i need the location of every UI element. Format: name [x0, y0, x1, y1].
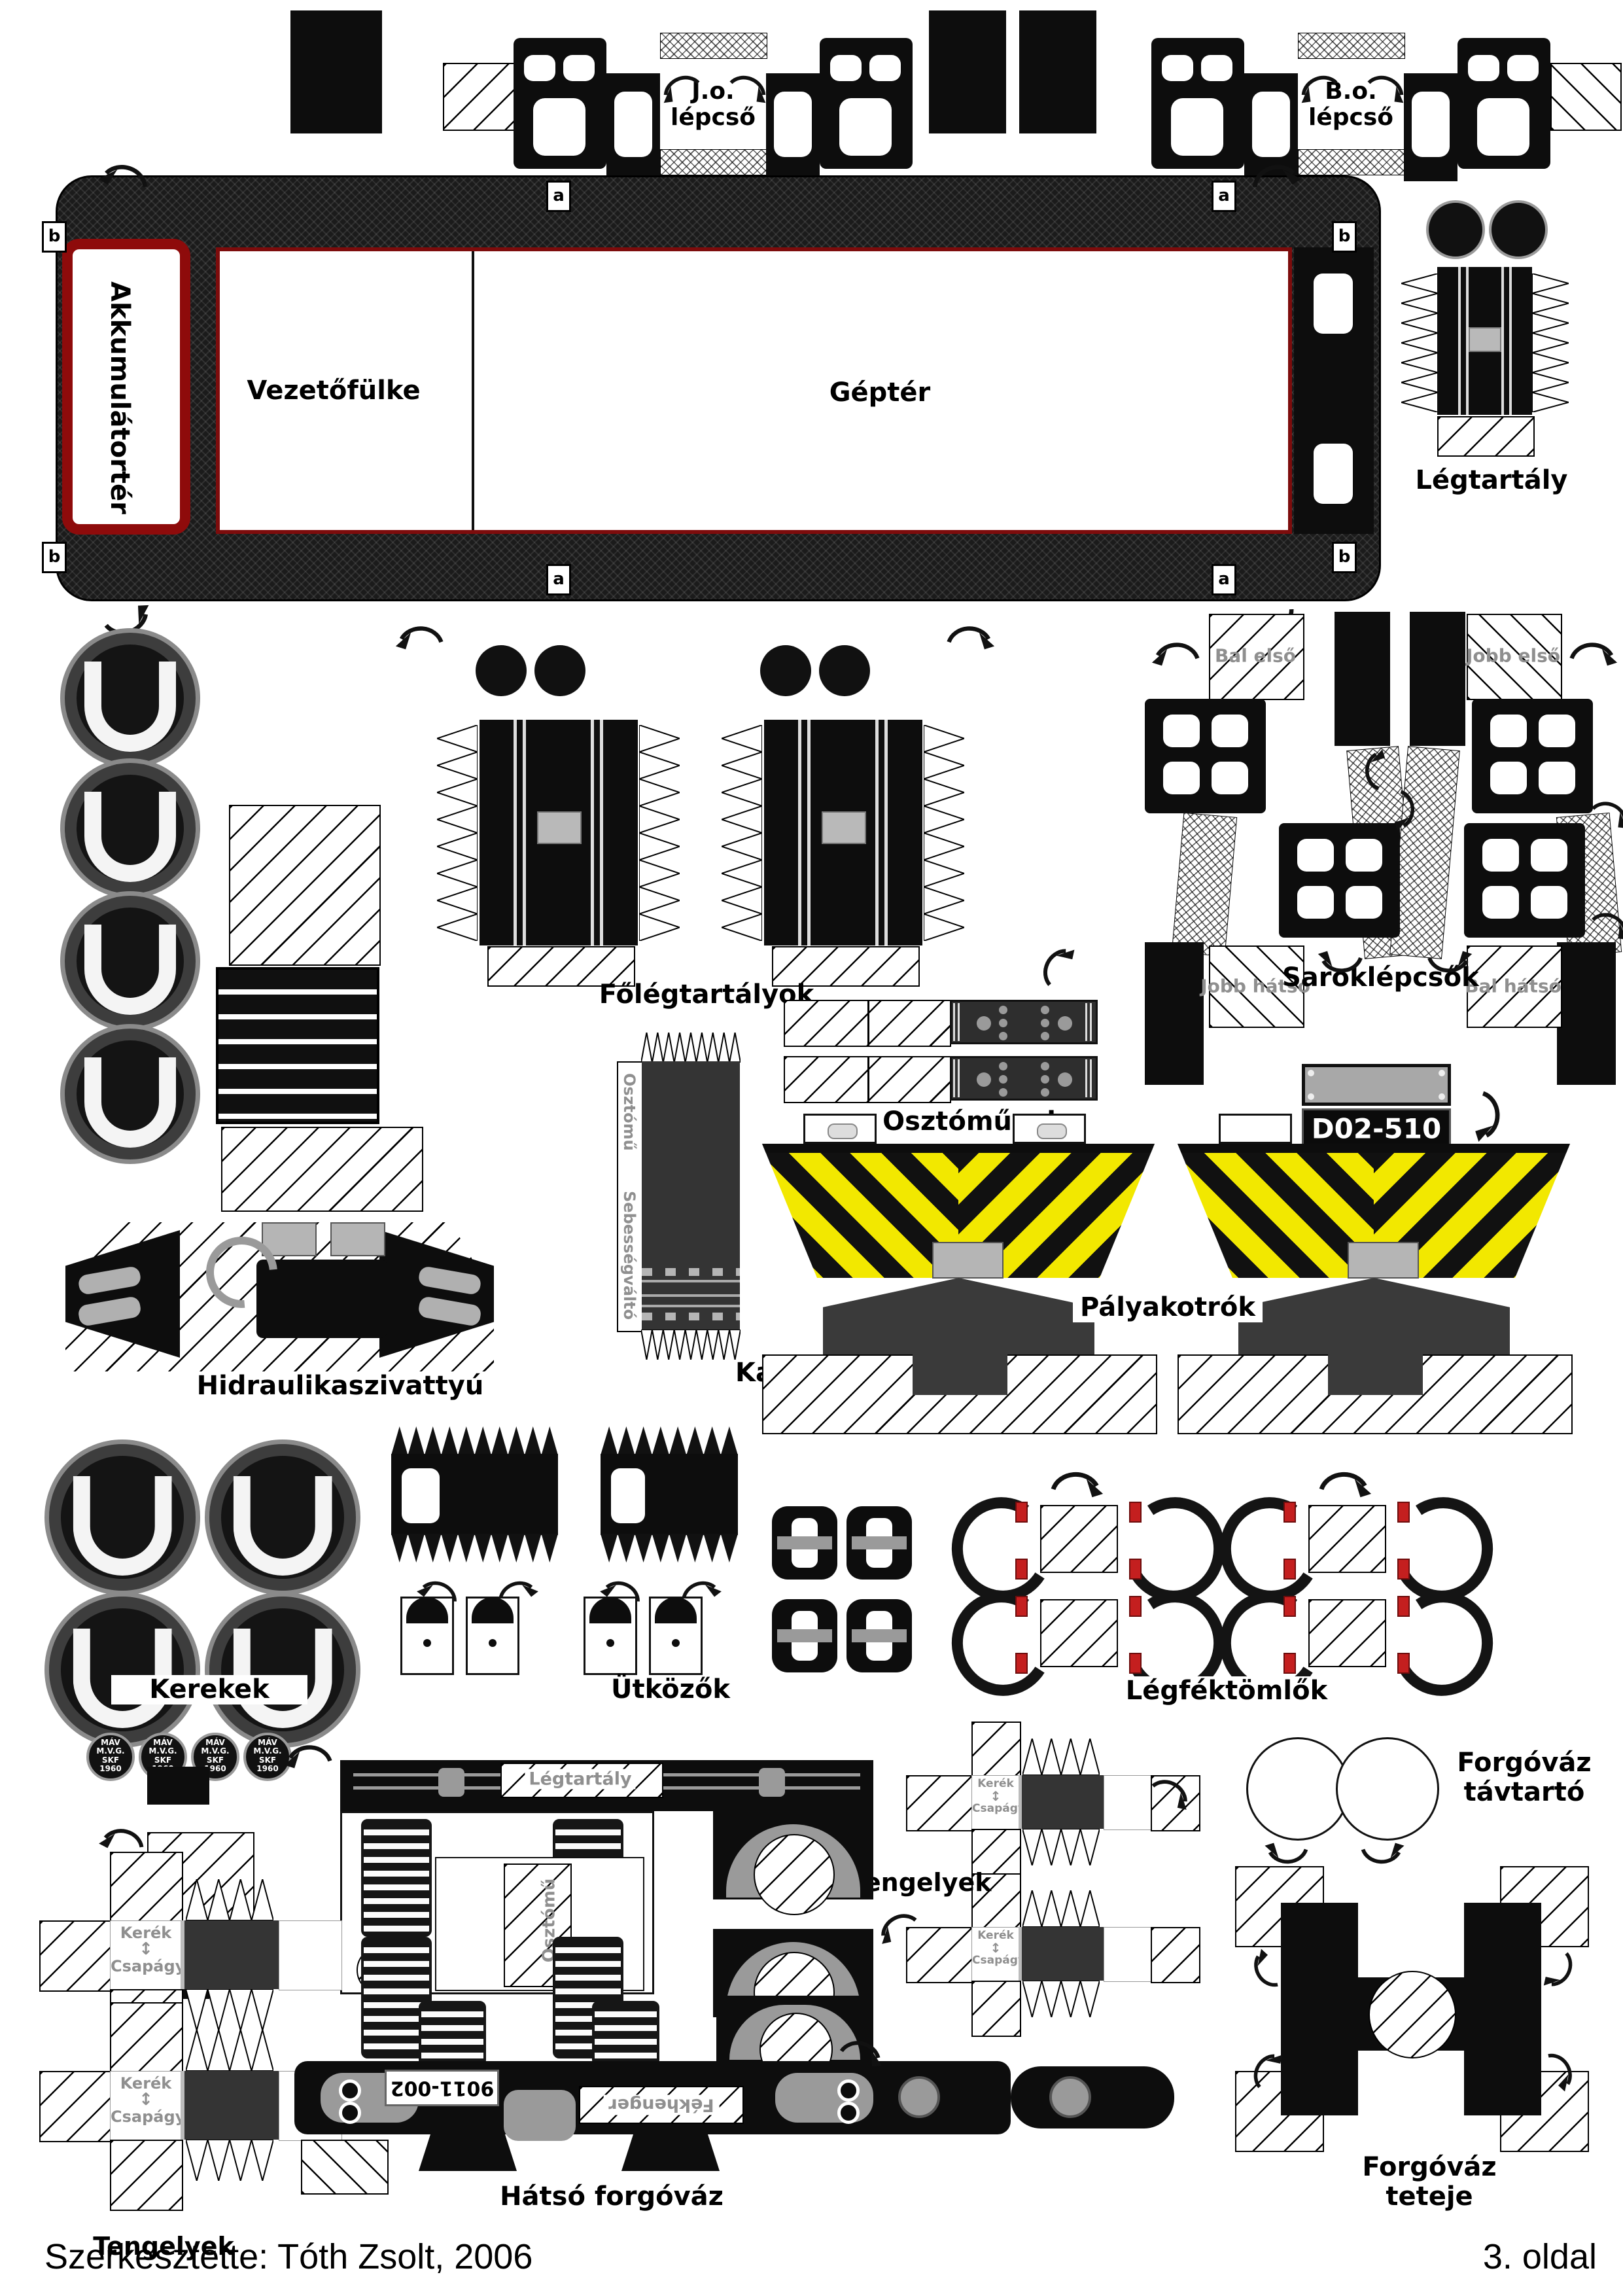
pivot-dot: [339, 2102, 361, 2124]
coupler-detail: [1037, 1123, 1067, 1139]
axle-body: [181, 2071, 287, 2140]
shaft-dot: [977, 1016, 991, 1031]
hose-clamp: [1015, 1502, 1028, 1523]
tank-end-disc: [534, 645, 585, 696]
step-plate: [1457, 38, 1550, 169]
center-block: [504, 2090, 576, 2141]
axle-body: [1019, 1927, 1110, 1981]
wheel: [60, 1024, 200, 1164]
buffer-sleeve: [772, 1599, 837, 1672]
step-plate: [820, 38, 913, 169]
glue-flap: [301, 2140, 389, 2195]
step-hole: [1412, 92, 1450, 157]
builder-plate: [1348, 1242, 1419, 1279]
rivet-dot: [1439, 1070, 1445, 1076]
hose-bracket: [1308, 1505, 1386, 1573]
step-hole: [1163, 715, 1200, 747]
curved-arrow: [1020, 930, 1079, 994]
spacer-disc: [1246, 1737, 1350, 1841]
rivet-dot: [1041, 1075, 1049, 1084]
corner-step-note: Bal hátsó: [1465, 976, 1562, 997]
step-hole: [1490, 762, 1527, 794]
step-hole: [1531, 886, 1567, 919]
step-column: [766, 73, 820, 181]
arch-wheel: [754, 1834, 835, 1915]
bearing-badge: MÁV M.V.G. SKF 1960: [86, 1733, 135, 1781]
hose-bracket: [1040, 1505, 1118, 1573]
step-hole: [1346, 886, 1382, 919]
plow-blade: [1238, 1278, 1510, 1355]
buffer-head: [472, 1597, 514, 1623]
cardan-body: [642, 1061, 740, 1330]
rivet-dot: [1041, 1006, 1049, 1014]
arm-disc: [898, 2076, 940, 2118]
bogie-foot: [419, 2134, 517, 2171]
step-hole: [1482, 839, 1519, 872]
wheel-cutout: [84, 662, 176, 752]
axle-bearing-note: Csapágy: [111, 2108, 181, 2126]
chevron-left-half: [1178, 1144, 1374, 1278]
step-hole: [1468, 55, 1499, 81]
tank-stripe: [1501, 267, 1504, 415]
axle-label-cell: Kerék ↕ Csapágy: [971, 1775, 1020, 1830]
chevron-top-edge: [762, 1144, 1155, 1153]
battery-label: Akkumulátortér: [105, 281, 135, 514]
sleeve-band: [852, 1629, 907, 1642]
buffer-stem: [400, 1597, 454, 1675]
curved-arrow: [1467, 1088, 1526, 1144]
hose-bracket: [1040, 1599, 1118, 1667]
rivet-dot: [999, 1006, 1007, 1014]
glue-flap: [1550, 63, 1622, 131]
wheel: [60, 758, 200, 898]
arm-disc: [1049, 2076, 1091, 2118]
distributor-flap: [784, 1056, 951, 1103]
pivot-circle: [1369, 1971, 1456, 2058]
curved-arrow: [1540, 1945, 1594, 2003]
number-plate-text: D02-510: [1312, 1113, 1441, 1145]
corner-step-plate: [1145, 699, 1266, 813]
glue-teeth: [186, 2140, 273, 2181]
hydraulic-pump-label: Hidraulikaszivattyú: [193, 1371, 487, 1401]
rivet-dot: [1041, 1088, 1049, 1097]
step-hole: [1297, 839, 1334, 872]
corner-step-plate: [1472, 699, 1593, 813]
tick-marks: [1085, 1003, 1094, 1041]
tank-end-disc: [1426, 200, 1485, 259]
axle-cell: [1104, 1775, 1152, 1830]
rear-bogie-label: Hátsó forgóváz: [497, 2182, 726, 2212]
axle-label-cell: Kerék ↕ Csapágy: [971, 1927, 1020, 1982]
zigzag-flap: [437, 725, 478, 941]
wheel: [44, 1592, 200, 1748]
join-tab-b: b: [1332, 542, 1357, 573]
shaft-dot: [1058, 1072, 1072, 1087]
axle-bearing-note: Csapágy: [111, 1957, 181, 1975]
rivet-dot: [999, 1032, 1007, 1040]
step-hole: [1346, 839, 1382, 872]
hose-clamp: [1397, 1502, 1410, 1523]
glue-teeth: [186, 1879, 273, 1920]
sleeve-band: [777, 1629, 832, 1642]
rivet-dot: [1308, 1093, 1314, 1100]
rivet-dot: [1041, 1062, 1049, 1070]
buffer-sleeve: [846, 1599, 912, 1672]
glue-flap: [443, 63, 516, 131]
axle-flap: [39, 2071, 113, 2142]
axle-flap: [906, 1927, 974, 1983]
curved-arrow: [281, 1727, 337, 1769]
join-tab-b: b: [42, 221, 67, 253]
tank-end-disc: [476, 645, 527, 696]
engine-room-label: Géptér: [772, 378, 988, 408]
step-hole: [1212, 762, 1248, 794]
zigzag-flap: [722, 725, 762, 941]
cardan-rivets: [642, 1313, 740, 1320]
wheel: [60, 628, 200, 768]
cardan-rivets: [642, 1268, 740, 1276]
cardan-top-note: Osztómű: [620, 1073, 638, 1151]
crosshatch-strip: [1172, 813, 1237, 957]
tank-plate: [537, 811, 582, 844]
buffer-stem: [466, 1597, 519, 1675]
hose-clamp: [1283, 1653, 1296, 1674]
tank-stripe: [798, 720, 801, 945]
axle-flap: [110, 1852, 183, 1923]
black-column: [1145, 942, 1204, 1085]
spacer-disc: [1336, 1737, 1439, 1841]
zigzag-flap: [1532, 274, 1569, 412]
glue-teeth: [1022, 1890, 1100, 1927]
plows-label: Pályakotrók: [1073, 1293, 1263, 1322]
sleeve-band: [852, 1536, 907, 1549]
builder-plate: 9011-002: [385, 2070, 499, 2106]
join-tab-a: a: [1212, 181, 1236, 212]
axle-flap: [971, 1722, 1021, 1778]
tank-end-disc: [760, 645, 811, 696]
glue-teeth: [1022, 1739, 1100, 1775]
step-hole: [830, 55, 862, 81]
step-hole: [1507, 55, 1539, 81]
rivet-dot: [999, 1062, 1007, 1070]
black-block: [1019, 10, 1096, 133]
wheel: [60, 891, 200, 1031]
hose-clamp: [1129, 1502, 1142, 1523]
rivet-dot: [1439, 1093, 1445, 1100]
buffer-stem: [649, 1597, 703, 1675]
plow-base-notch: [1328, 1354, 1423, 1395]
buffer-head: [406, 1597, 448, 1623]
tank-stripe: [600, 720, 603, 945]
tank-stripe: [875, 720, 879, 945]
black-column: [1335, 612, 1390, 746]
curved-arrow: [1357, 1842, 1406, 1880]
brake-cyl-note: Fékhenger: [603, 2095, 719, 2115]
glue-teeth: [641, 1033, 741, 1063]
curved-arrow: [942, 609, 998, 650]
crosshatch-flap: [1298, 149, 1405, 175]
chevron-top-edge: [1178, 1144, 1570, 1153]
cardan-line: [642, 1305, 740, 1307]
hose-clamp: [1129, 1653, 1142, 1674]
buffer-stem: [584, 1597, 637, 1675]
tick-marks: [953, 1003, 962, 1041]
curved-arrow: [95, 1809, 153, 1856]
step-column: [606, 73, 660, 181]
tank-wrap: [1437, 267, 1532, 415]
glue-teeth: [1022, 1981, 1100, 2017]
join-tab-b: b: [42, 542, 67, 573]
stem-dot: [672, 1639, 680, 1647]
tick-marks: [1085, 1059, 1094, 1097]
glue-flap: [1437, 416, 1535, 457]
updown-arrow: ↕: [111, 2093, 181, 2108]
pump-detail: [77, 1296, 142, 1327]
glue-teeth: [601, 1426, 738, 1455]
wheels-label: Kerekek: [111, 1675, 307, 1704]
tank-end-disc: [1489, 200, 1548, 259]
glue-flap: [229, 805, 381, 966]
axle-bearing-note: Csapágy: [972, 1802, 1019, 1815]
tick-marks: [953, 1059, 962, 1097]
axle-body: [181, 1920, 287, 1989]
shaft-dot: [1058, 1016, 1072, 1031]
spring: [592, 2001, 659, 2066]
step-hole: [839, 98, 892, 156]
coupler-detail: [828, 1123, 858, 1139]
glue-teeth: [186, 1989, 273, 2030]
bogie-tank-note: Légtartály: [525, 1769, 635, 1790]
hose-clamp: [1015, 1653, 1028, 1674]
bogie-foot: [621, 2134, 720, 2171]
pump-detail: [77, 1265, 142, 1296]
step-plate: [1151, 38, 1244, 169]
plow-base-notch: [913, 1354, 1007, 1395]
footer-page-number: 3. oldal: [1483, 2236, 1597, 2277]
coupler-tab: [1013, 1114, 1086, 1144]
wheel-cutout: [73, 1476, 172, 1575]
chevron-left-half: [762, 1144, 958, 1278]
black-column: [1557, 942, 1616, 1085]
footer-credit: Szerkesztette: Tóth Zsolt, 2006: [44, 2236, 532, 2277]
hose-bracket: [1308, 1599, 1386, 1667]
tank-stripe: [807, 720, 811, 945]
body-end-cap: [1294, 247, 1374, 534]
wheel-cutout: [234, 1476, 332, 1575]
step-hole: [524, 55, 555, 81]
axle-bearing-note: Csapágy: [972, 1954, 1019, 1967]
stem-dot: [489, 1639, 497, 1647]
builder-plate: [932, 1242, 1003, 1279]
glue-teeth: [601, 1534, 738, 1563]
cardan-line: [642, 1294, 740, 1297]
plow-blade: [823, 1278, 1094, 1355]
tank-stripe: [884, 720, 888, 945]
buffers-label: Ütközők: [576, 1675, 765, 1704]
rivet-dot: [999, 1019, 1007, 1027]
bogie-top-label: Forgóváz teteje: [1315, 2153, 1544, 2212]
corner-step-note: Bal első: [1215, 645, 1296, 667]
number-plate: D02-510: [1302, 1108, 1451, 1149]
step-hole: [1477, 98, 1529, 156]
curved-arrow: [1423, 950, 1475, 989]
step-hole: [563, 55, 595, 81]
wheel: [205, 1592, 360, 1748]
lever-cluster: [775, 2073, 873, 2123]
hose-clamp: [1283, 1596, 1296, 1617]
step-hole: [869, 55, 901, 81]
stem-dot: [423, 1639, 431, 1647]
axle-label-cell: Kerék ↕ Csapágy: [110, 2071, 182, 2141]
axle-flap: [110, 2002, 183, 2074]
distributor-flap: [784, 1000, 951, 1047]
flap-divider: [867, 1001, 869, 1046]
black-block: [290, 10, 382, 133]
pipe-fitting: [759, 1768, 785, 1797]
brake-hoses-label: Légféktömlők: [1112, 1676, 1341, 1706]
pivot-dot: [837, 2102, 860, 2124]
buffer-plate: [391, 1454, 558, 1535]
updown-arrow: ↕: [111, 1942, 181, 1957]
buffer-plate: [601, 1454, 738, 1535]
hose-clamp: [1283, 1502, 1296, 1523]
curved-arrow: [1350, 747, 1386, 794]
curved-arrow: [1047, 1453, 1106, 1498]
black-block: [147, 1767, 209, 1805]
hose-clamp: [1397, 1653, 1410, 1674]
flap-divider: [867, 1057, 869, 1102]
step-hole: [1539, 715, 1575, 747]
step-hole: [533, 98, 585, 156]
cardan-bottom-note: Sebességváltó: [620, 1191, 638, 1320]
pump-detail: [417, 1296, 482, 1327]
cab-engine-divider: [472, 251, 474, 530]
bogie-top-notch: [1358, 2051, 1464, 2115]
tank-plate: [1469, 327, 1501, 352]
pivot-dot: [339, 2079, 361, 2102]
step-hole: [1162, 55, 1193, 81]
axle-cell: [279, 1920, 342, 1990]
step-hole: [1201, 55, 1232, 81]
rivet-dot: [1308, 1070, 1314, 1076]
tank-wrap: [480, 720, 638, 945]
end-door: [1314, 444, 1353, 504]
axle-flap: [39, 1920, 113, 1992]
bogie-spacer-label: Forgóváz távtartó: [1436, 1748, 1613, 1807]
papercraft-sheet: J.o. lépcső B.o. lépcső Akkumulátortér V…: [0, 0, 1623, 2296]
axle-flap: [1151, 1927, 1200, 1983]
distributor-body: [950, 1056, 1098, 1101]
hose-clamp: [1397, 1559, 1410, 1580]
axle-cell: [1104, 1927, 1152, 1982]
cab-label: Vezetőfülke: [236, 376, 432, 406]
curved-arrow: [393, 609, 448, 650]
end-door: [1314, 274, 1353, 334]
step-column: [1404, 73, 1457, 181]
step-hole: [1297, 886, 1334, 919]
corner-step-plate: [1279, 823, 1400, 938]
crosshatch-flap: [660, 149, 767, 175]
rivet-dot: [1041, 1032, 1049, 1040]
axle-body: [1019, 1775, 1110, 1829]
hose-clamp: [1397, 1596, 1410, 1617]
join-tab-a: a: [1212, 564, 1236, 595]
corner-step-plate: [1464, 823, 1585, 938]
axle-label-cell: Kerék ↕ Csapágy: [110, 1920, 182, 1990]
updown-arrow: ↕: [972, 1790, 1019, 1802]
buffer-head: [655, 1597, 697, 1623]
bogie-top-notch: [1358, 1903, 1464, 1967]
pump-top-block: [330, 1222, 385, 1256]
step-plate: [514, 38, 606, 169]
step-hole: [1531, 839, 1567, 872]
hose-clamp: [1283, 1559, 1296, 1580]
axle-flap: [906, 1775, 974, 1831]
corner-step-note: Jobb első: [1466, 645, 1560, 667]
spring: [419, 2001, 486, 2066]
black-column: [1410, 612, 1465, 746]
join-tab-a: a: [546, 564, 571, 595]
wheel-arch-panel: [713, 1811, 873, 1899]
cardan-line: [642, 1280, 740, 1282]
axle-flap: [110, 2140, 183, 2211]
coupler-tab: [1219, 1114, 1292, 1144]
pivot-dot: [837, 2079, 860, 2102]
tank-stripe: [523, 720, 526, 945]
tank-stripe: [591, 720, 594, 945]
curved-arrow: [1232, 1945, 1287, 2003]
step-hole: [1171, 98, 1223, 156]
coupler-tab: [803, 1114, 877, 1144]
step-hole: [774, 92, 812, 157]
black-block: [929, 10, 1006, 133]
wheel-cutout: [84, 925, 176, 1015]
tank-stripe: [1458, 267, 1461, 415]
hose-clamp: [1015, 1596, 1028, 1617]
tank-stripe: [514, 720, 517, 945]
buffer-sleeve: [846, 1506, 912, 1580]
curved-arrow: [1315, 1453, 1374, 1498]
air-tank-label: Légtartály: [1393, 466, 1590, 495]
tank-stripe: [1509, 267, 1512, 415]
step-hole: [1539, 762, 1575, 794]
curved-arrow: [1394, 786, 1430, 834]
buffer-head: [589, 1597, 631, 1623]
step-hole: [1482, 886, 1519, 919]
curved-arrow: [1315, 950, 1367, 989]
buffer-sleeve: [772, 1506, 837, 1580]
rivet-dot: [999, 1088, 1007, 1097]
zigzag-flap: [1401, 274, 1438, 412]
crosshatch-flap: [1298, 33, 1405, 59]
plate-number: 9011-002: [390, 2077, 494, 2100]
shaft-dot: [977, 1072, 991, 1087]
hose-clamp: [1129, 1559, 1142, 1580]
brake-cyl-tab: Fékhenger: [579, 2086, 744, 2124]
zigzag-flap: [924, 725, 964, 941]
crosshatch-flap: [660, 33, 767, 59]
step-hole: [1490, 715, 1527, 747]
pipe-fitting: [438, 1768, 464, 1797]
wheel-cutout: [84, 1057, 176, 1148]
glue-flap: [221, 1127, 423, 1212]
tank-wrap: [764, 720, 922, 945]
step-hole: [1163, 762, 1200, 794]
tank-plate: [822, 811, 866, 844]
hose-clamp: [1129, 1596, 1142, 1617]
glue-teeth: [1022, 1829, 1100, 1865]
curved-arrow: [1149, 625, 1204, 667]
